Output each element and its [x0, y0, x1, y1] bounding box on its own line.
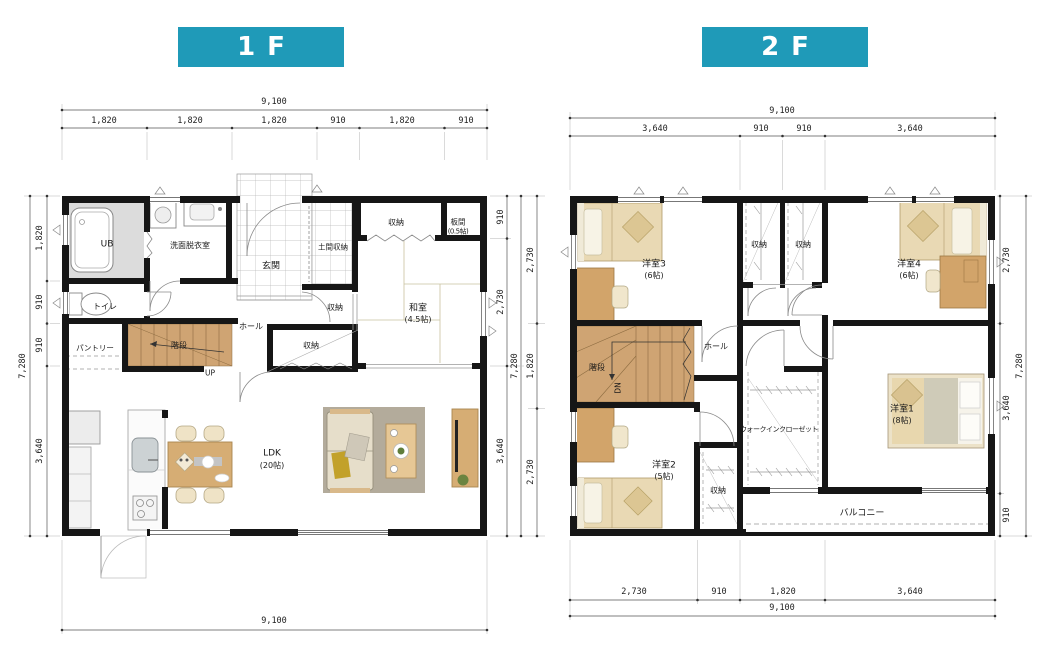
tv	[455, 420, 458, 472]
f2-label-room4: 洋室4	[897, 261, 921, 270]
f1-label-itanoma: 板間	[451, 218, 466, 226]
f2-label-room1-size: (8帖)	[892, 417, 911, 425]
f1-label-ub: UB	[101, 241, 114, 250]
f2-dim-right-2: 910	[1003, 507, 1012, 522]
pillow	[584, 483, 602, 523]
entrance-tile-floor	[237, 174, 312, 300]
f2-title-banner: 2F	[702, 27, 868, 67]
f1-dim-top-4: 1,820	[389, 117, 415, 126]
f1-label-ldk-size: (20帖)	[260, 462, 284, 470]
f1-label-storage-mid: 収納	[327, 304, 343, 312]
floorplan-sheet: 1F 2F UB 洗面脱衣室 玄関 土間収納 収納 板間 (0.5帖) 和室 (…	[0, 0, 1040, 648]
f1-label-stairs: 階段	[171, 342, 187, 350]
f2-label-room2: 洋室2	[652, 462, 676, 471]
cabinet	[68, 447, 91, 528]
desk	[574, 268, 614, 322]
desk	[940, 256, 986, 308]
f1-dim-right-2: 3,640	[497, 438, 506, 464]
tatami-lines	[358, 241, 480, 363]
f2-dim-left-1: 1,820	[527, 353, 536, 379]
f1-label-ldk: LDK	[263, 450, 281, 459]
f2-dim-bottom-total: 9,100	[769, 604, 795, 613]
room2-furniture	[574, 408, 662, 528]
f2-label-storage-c: 収納	[710, 487, 726, 495]
f1-label-washitsu-size: (4.5帖)	[405, 316, 432, 324]
f2-label-wic: ウォークインクローゼット	[740, 427, 818, 434]
plan-drawing	[0, 0, 1040, 648]
f2-label-room2-size: (5帖)	[654, 473, 673, 481]
f1-label-toilet: トイレ	[93, 303, 117, 311]
pillow	[960, 382, 980, 408]
f1-label-storage-low: 収納	[303, 342, 319, 350]
f2-dim-right-0: 2,730	[1003, 247, 1012, 273]
f2-dim-top-2: 910	[796, 125, 811, 134]
f2-dim-left-2: 2,730	[527, 459, 536, 485]
f1-dim-top-total: 9,100	[261, 98, 287, 107]
f1-dim-right-total: 7,280	[511, 353, 520, 379]
pillow	[952, 208, 972, 254]
f2-label-stairs: 階段	[589, 364, 605, 372]
f2-plan	[561, 112, 1032, 620]
f2-dim-left-0: 2,730	[527, 247, 536, 273]
f1-dim-top-1: 1,820	[177, 117, 203, 126]
f2-label-storage-b: 収納	[795, 241, 811, 249]
f1-dim-top-2: 1,820	[261, 117, 287, 126]
balcony	[746, 524, 995, 536]
f2-dim-top-0: 3,640	[642, 125, 668, 134]
stove	[133, 496, 157, 520]
f2-doors	[700, 285, 833, 447]
f1-plan	[24, 104, 545, 634]
f1-dim-right-0: 910	[497, 209, 506, 224]
f1-label-itanoma-size: (0.5帖)	[448, 229, 469, 236]
pillow	[960, 414, 980, 440]
f1-dim-left-2: 910	[36, 337, 45, 352]
chair	[612, 286, 628, 308]
f1-label-washitsu: 和室	[409, 305, 427, 314]
f2-dim-top-total: 9,100	[769, 107, 795, 116]
f1-label-storage-top: 収納	[388, 219, 404, 227]
room4-furniture	[900, 202, 986, 308]
f2-title: 2F	[749, 32, 821, 62]
f1-label-pantry: パントリー	[76, 344, 114, 352]
pantry-shelves	[66, 356, 120, 369]
f2-label-balcony: バルコニー	[840, 510, 885, 519]
f2-dim-bottom-2: 1,820	[770, 588, 796, 597]
f2-dim-bottom-3: 3,640	[897, 588, 923, 597]
f2-label-room3-size: (6帖)	[644, 272, 663, 280]
f2-dim-right-1: 3,640	[1003, 395, 1012, 421]
toilet-tank	[69, 293, 82, 315]
plant	[458, 475, 469, 486]
f1-title-banner: 1F	[178, 27, 344, 67]
f1-label-hall: ホール	[239, 323, 263, 331]
f2-label-room4-size: (6帖)	[899, 272, 918, 280]
f2-label-room1: 洋室1	[890, 406, 914, 415]
dining-set	[168, 426, 232, 503]
f1-dim-top-3: 910	[330, 117, 345, 126]
f1-label-entrance: 玄関	[262, 263, 280, 272]
f2-label-room3: 洋室3	[642, 261, 666, 270]
living-set	[323, 407, 478, 493]
f2-dim-bottom-0: 2,730	[621, 588, 647, 597]
desk	[574, 408, 614, 462]
f1-dim-left-3: 3,640	[36, 438, 45, 464]
refrigerator	[68, 411, 100, 444]
chair	[612, 426, 628, 448]
pillow	[584, 209, 602, 255]
f2-dim-bottom-1: 910	[711, 588, 726, 597]
f1-title: 1F	[225, 32, 297, 62]
f2-label-hall: ホール	[704, 343, 728, 351]
f2-dim-top-3: 3,640	[897, 125, 923, 134]
f1-label-washroom: 洗面脱衣室	[170, 242, 210, 250]
f1-dim-top-5: 910	[458, 117, 473, 126]
f1-label-up: UP	[205, 369, 215, 377]
kitchen-sink	[132, 438, 158, 472]
f1-dim-left-total: 7,280	[19, 353, 28, 379]
f1-dim-right-1: 2,730	[497, 289, 506, 315]
kitchen	[68, 410, 165, 530]
f1-dim-bottom-total: 9,100	[261, 617, 287, 626]
f1-dim-top-0: 1,820	[91, 117, 117, 126]
f2-label-dn: DN	[614, 382, 622, 393]
chair	[926, 270, 940, 292]
f2-dim-top-1: 910	[753, 125, 768, 134]
f2-label-storage-a: 収納	[751, 241, 767, 249]
f1-dim-left-0: 1,820	[36, 225, 45, 251]
f1-label-doma-storage: 土間収納	[318, 243, 348, 251]
f2-dim-right-total: 7,280	[1016, 353, 1025, 379]
f1-dim-left-1: 910	[36, 294, 45, 309]
